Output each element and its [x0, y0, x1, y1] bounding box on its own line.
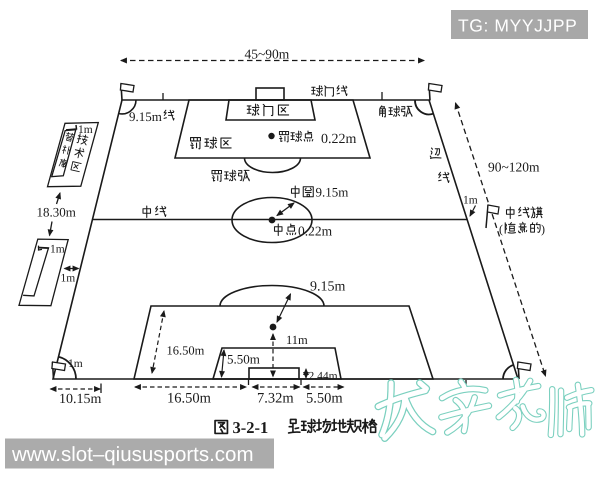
svg-text:1m: 1m [61, 273, 76, 285]
svg-text:5.50m: 5.50m [227, 352, 260, 367]
svg-text:16.50m: 16.50m [167, 344, 205, 358]
svg-text:11m: 11m [286, 333, 308, 347]
svg-text:16.50m: 16.50m [167, 391, 212, 407]
svg-text:www.slot–qiususports.com: www.slot–qiususports.com [11, 443, 254, 466]
svg-text:1m: 1m [68, 358, 83, 370]
svg-text:90~120m: 90~120m [488, 160, 540, 175]
svg-text:0.22m: 0.22m [321, 132, 357, 147]
svg-text:): ) [541, 222, 545, 236]
svg-text:0.22m: 0.22m [298, 224, 333, 239]
svg-text:10.15m: 10.15m [59, 392, 102, 407]
svg-text:45~90m: 45~90m [245, 47, 290, 62]
svg-text:3-2-1: 3-2-1 [233, 418, 269, 437]
svg-text:9.15m: 9.15m [129, 109, 162, 124]
svg-text:1m: 1m [463, 195, 478, 207]
svg-text:2.44m: 2.44m [309, 371, 338, 383]
svg-text:9.15m: 9.15m [310, 280, 346, 295]
svg-text:1m: 1m [50, 244, 65, 256]
svg-text:(: ( [499, 222, 503, 236]
svg-text:9.15m: 9.15m [316, 185, 349, 200]
svg-text:TG: MYYJJPP: TG: MYYJJPP [458, 16, 577, 36]
svg-text:18.30m: 18.30m [37, 205, 76, 220]
svg-text:7.32m: 7.32m [257, 391, 294, 407]
svg-text:5.50m: 5.50m [306, 391, 343, 407]
